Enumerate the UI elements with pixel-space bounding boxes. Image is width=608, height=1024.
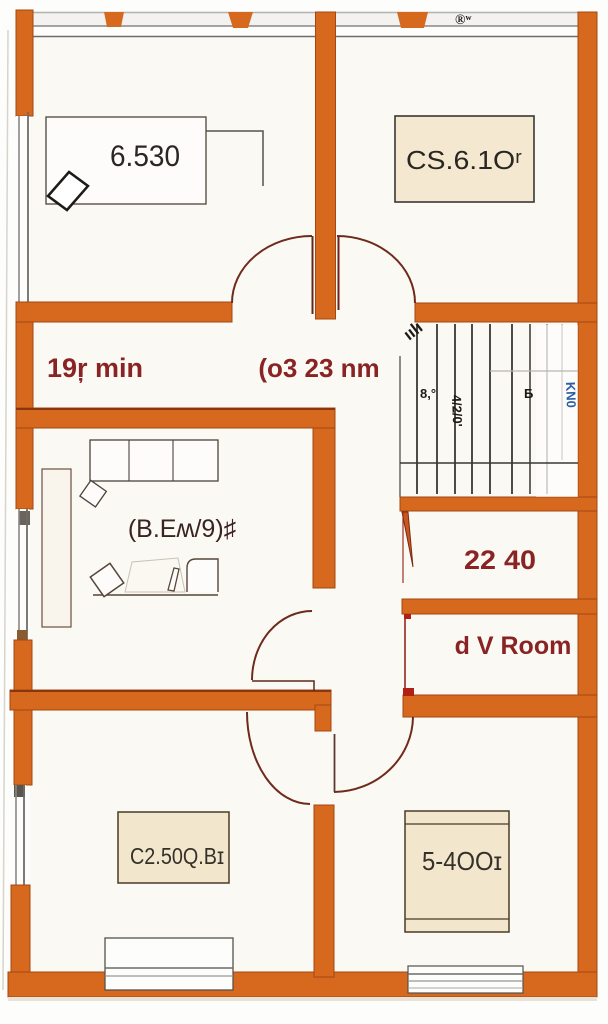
svg-text:8,°: 8,° [420, 386, 436, 401]
svg-text:CS.6.1Oʳ: CS.6.1Oʳ [406, 145, 522, 175]
svg-text:19ŗ min: 19ŗ min [47, 353, 143, 383]
svg-text:5-4OOɪ: 5-4OOɪ [422, 846, 502, 876]
svg-text:(o3 23 nm: (o3 23 nm [258, 353, 379, 383]
svg-text:6.530: 6.530 [110, 140, 180, 173]
svg-text:d V Room: d V Room [455, 632, 572, 660]
svg-text:KN0: KN0 [563, 382, 579, 409]
svg-text:22 40: 22 40 [464, 545, 536, 575]
svg-text:4/2/0': 4/2/0' [449, 395, 465, 428]
svg-text:Б: Б [524, 386, 533, 401]
svg-text:C2.50Q.Bɪ: C2.50Q.Bɪ [130, 843, 224, 869]
svg-text:®ʷ: ®ʷ [455, 13, 472, 28]
svg-text:(B.Eʍ/9)♯: (B.Eʍ/9)♯ [128, 515, 236, 543]
